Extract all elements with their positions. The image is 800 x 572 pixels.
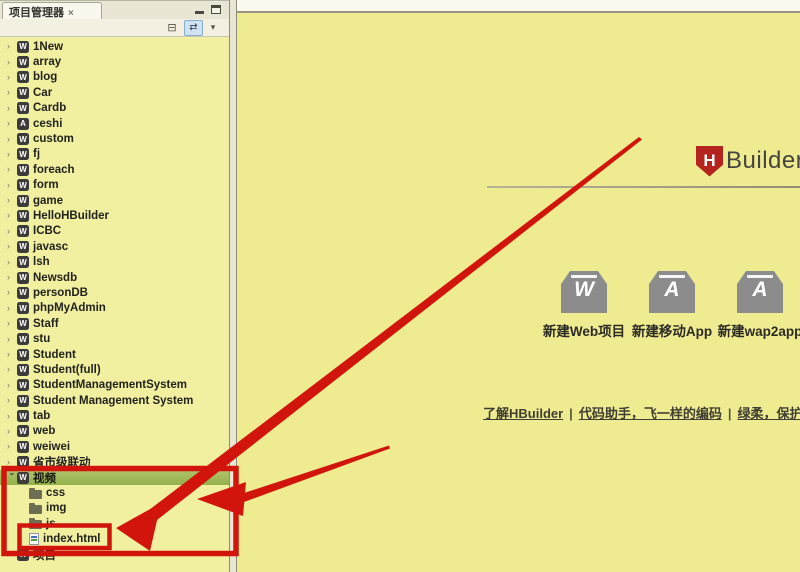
hbuilder-shield-icon: H xyxy=(696,146,723,177)
chevron-right-icon[interactable] xyxy=(7,135,17,144)
web-project-icon xyxy=(17,318,29,330)
collapse-all-icon[interactable] xyxy=(164,20,180,35)
chevron-right-icon[interactable] xyxy=(7,458,17,467)
web-project-icon xyxy=(17,549,29,561)
web-project-icon xyxy=(17,195,29,207)
logo-text: Builder xyxy=(726,147,800,175)
chevron-right-icon[interactable] xyxy=(7,73,17,82)
chevron-right-icon[interactable] xyxy=(7,196,17,205)
chevron-right-icon[interactable] xyxy=(7,288,17,297)
tree-item-video-project[interactable]: 视频 xyxy=(0,470,229,485)
chevron-right-icon[interactable] xyxy=(7,396,17,405)
project-tree: 1New array blog Car Cardb ceshi custom f… xyxy=(0,37,229,572)
web-project-icon xyxy=(17,364,29,376)
web-project-icon xyxy=(17,148,29,160)
chevron-right-icon[interactable] xyxy=(7,42,17,51)
tree-item[interactable]: ICBC xyxy=(0,224,229,239)
tree-item[interactable]: 项目 xyxy=(0,547,229,562)
hbuilder-window: 项目管理器 1New array blog Car Cardb ceshi cu… xyxy=(0,0,800,572)
web-project-icon xyxy=(17,41,29,53)
chevron-right-icon[interactable] xyxy=(7,181,17,190)
app-project-icon xyxy=(17,118,29,130)
tree-item[interactable]: lsh xyxy=(0,254,229,269)
new-wap2app-button[interactable]: A 新建wap2app xyxy=(702,271,800,340)
tree-item[interactable]: Student(full) xyxy=(0,362,229,377)
chevron-right-icon[interactable] xyxy=(7,211,17,220)
tree-item[interactable]: tab xyxy=(0,408,229,423)
panel-title: 项目管理器 xyxy=(9,4,64,20)
editor-top-strip xyxy=(237,0,800,11)
web-project-icon xyxy=(17,379,29,391)
tree-item-img-folder[interactable]: img xyxy=(0,501,229,516)
tree-item[interactable]: fj xyxy=(0,147,229,162)
chevron-right-icon[interactable] xyxy=(7,150,17,159)
tree-item-js-folder[interactable]: js xyxy=(0,516,229,531)
folder-icon xyxy=(29,490,42,499)
tree-item[interactable]: ceshi xyxy=(0,116,229,131)
editor-top-divider xyxy=(237,11,800,13)
web-project-icon xyxy=(17,225,29,237)
chevron-right-icon[interactable] xyxy=(7,165,17,174)
tree-item[interactable]: blog xyxy=(0,70,229,85)
web-project-icon xyxy=(17,179,29,191)
web-project-icon xyxy=(17,395,29,407)
tree-item[interactable]: Student Management System xyxy=(0,393,229,408)
folder-icon xyxy=(29,520,42,529)
tree-item[interactable]: javasc xyxy=(0,239,229,254)
tree-item[interactable]: game xyxy=(0,193,229,208)
footer-links: 了解HBuilder|代码助手，飞一样的编码|绿柔，保护你的眼睛| xyxy=(483,403,800,422)
web-project-icon xyxy=(17,349,29,361)
link-green-soft[interactable]: 绿柔，保护你的眼睛 xyxy=(737,406,800,421)
web-project-icon xyxy=(17,164,29,176)
chevron-right-icon[interactable] xyxy=(7,88,17,97)
chevron-right-icon[interactable] xyxy=(7,227,17,236)
tree-item[interactable]: Newsdb xyxy=(0,270,229,285)
tree-item[interactable]: HelloHBuilder xyxy=(0,208,229,223)
tree-item[interactable]: personDB xyxy=(0,285,229,300)
tree-item[interactable]: array xyxy=(0,54,229,69)
web-project-icon xyxy=(17,133,29,145)
chevron-right-icon[interactable] xyxy=(7,242,17,251)
chevron-right-icon[interactable] xyxy=(7,104,17,113)
link-about-hbuilder[interactable]: 了解HBuilder xyxy=(483,406,563,421)
tree-item[interactable]: custom xyxy=(0,131,229,146)
tree-item[interactable]: phpMyAdmin xyxy=(0,301,229,316)
chevron-right-icon[interactable] xyxy=(7,381,17,390)
chevron-right-icon[interactable] xyxy=(7,119,17,128)
panel-window-buttons xyxy=(195,4,221,14)
web-project-icon xyxy=(17,210,29,222)
web-project-icon xyxy=(17,456,29,468)
maximize-icon[interactable] xyxy=(211,5,221,14)
start-page: H Builder W 新建Web项目 A 新建 xyxy=(237,0,800,572)
web-project-icon xyxy=(17,102,29,114)
link-code-assistant[interactable]: 代码助手，飞一样的编码 xyxy=(579,406,722,421)
project-explorer-panel: 项目管理器 1New array blog Car Cardb ceshi cu… xyxy=(0,0,229,572)
web-project-icon xyxy=(17,410,29,422)
web-project-icon xyxy=(17,241,29,253)
chevron-right-icon[interactable] xyxy=(7,412,17,421)
tab-project-explorer[interactable]: 项目管理器 xyxy=(2,2,102,20)
web-project-icon xyxy=(17,302,29,314)
panel-splitter[interactable] xyxy=(229,0,237,572)
web-project-icon xyxy=(17,472,29,484)
chevron-right-icon[interactable] xyxy=(7,304,17,313)
tree-item[interactable]: foreach xyxy=(0,162,229,177)
view-menu-icon[interactable] xyxy=(207,20,219,35)
new-wap2app-label: 新建wap2app xyxy=(702,320,800,340)
panel-toolbar xyxy=(0,19,229,37)
panel-header: 项目管理器 xyxy=(0,0,229,19)
tree-item[interactable]: Staff xyxy=(0,316,229,331)
close-icon[interactable] xyxy=(68,3,74,21)
chevron-right-icon[interactable] xyxy=(7,258,17,267)
chevron-right-icon[interactable] xyxy=(7,550,17,559)
chevron-right-icon[interactable] xyxy=(7,427,17,436)
web-project-icon xyxy=(17,425,29,437)
tree-item[interactable]: Car xyxy=(0,85,229,100)
chevron-right-icon[interactable] xyxy=(7,365,17,374)
web-project-icon xyxy=(17,256,29,268)
minimize-icon[interactable] xyxy=(195,11,204,14)
web-project-icon xyxy=(17,56,29,68)
tree-item[interactable]: stu xyxy=(0,331,229,346)
chevron-right-icon[interactable] xyxy=(7,273,17,282)
header-divider xyxy=(487,186,800,188)
chevron-right-icon[interactable] xyxy=(7,319,17,328)
tree-item[interactable]: form xyxy=(0,178,229,193)
chevron-right-icon[interactable] xyxy=(7,58,17,67)
tree-item[interactable]: StudentManagementSystem xyxy=(0,378,229,393)
tree-item[interactable]: web xyxy=(0,424,229,439)
web-project-icon xyxy=(17,272,29,284)
chevron-right-icon[interactable] xyxy=(7,335,17,344)
web-project-icon xyxy=(17,333,29,345)
link-with-editor-icon[interactable] xyxy=(184,20,203,36)
tree-item[interactable]: Cardb xyxy=(0,101,229,116)
chevron-right-icon[interactable] xyxy=(7,350,17,359)
tree-item[interactable]: weiwei xyxy=(0,439,229,454)
chevron-down-icon[interactable] xyxy=(8,473,17,483)
chevron-right-icon[interactable] xyxy=(7,442,17,451)
tree-item[interactable]: Student xyxy=(0,347,229,362)
tree-item[interactable]: 1New xyxy=(0,39,229,54)
html-file-icon xyxy=(29,533,39,545)
tree-item-css-folder[interactable]: css xyxy=(0,485,229,500)
tree-item-index-html[interactable]: index.html xyxy=(0,532,229,547)
folder-icon xyxy=(29,505,42,514)
web-project-icon xyxy=(17,441,29,453)
web-project-icon xyxy=(17,287,29,299)
hbuilder-logo: H Builder xyxy=(696,142,800,180)
web-project-icon xyxy=(17,71,29,83)
tree-item[interactable]: 省市级联动 xyxy=(0,455,229,470)
web-project-icon xyxy=(17,87,29,99)
